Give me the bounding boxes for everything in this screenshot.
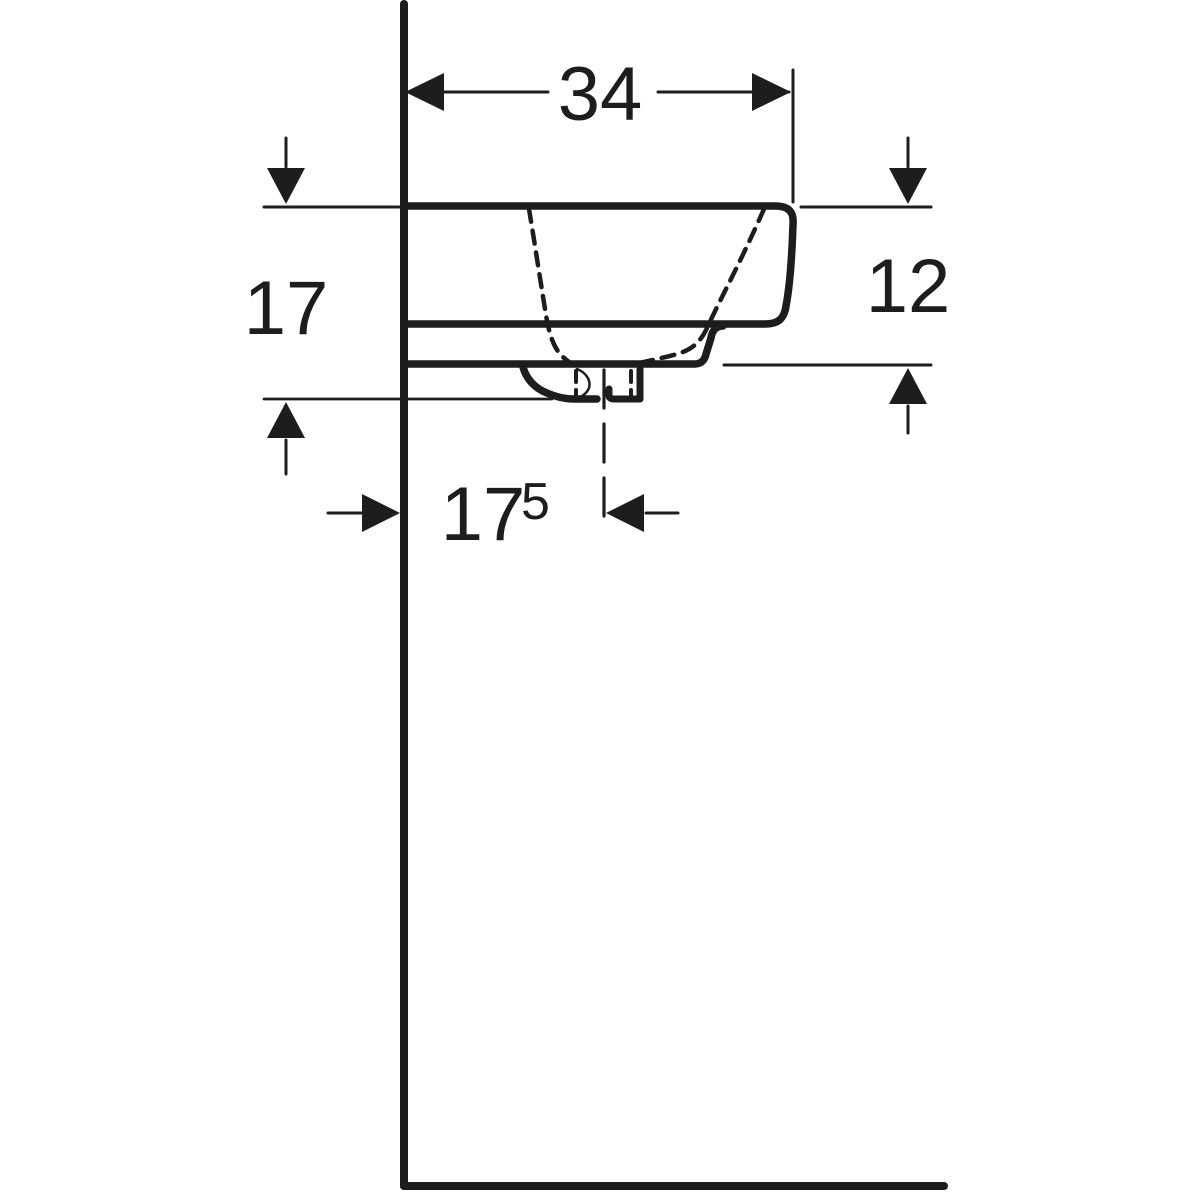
dim-34-arrow-right	[752, 73, 791, 111]
dim-175-value: 17	[441, 472, 526, 557]
drawing-page: 34 17 12 17 5	[0, 0, 1200, 1200]
dim-12-value: 12	[866, 244, 951, 329]
basin-body-outline	[404, 206, 793, 324]
dim-17-value: 17	[244, 266, 329, 351]
technical-drawing: 34 17 12 17 5	[0, 0, 1200, 1200]
drain-outlet-outline	[609, 369, 640, 399]
dim-34-arrow-left	[405, 73, 444, 111]
dim-175-superscript: 5	[521, 473, 550, 531]
bowl-hidden-line-left	[529, 209, 576, 366]
dimension-width-top: 34	[405, 52, 793, 202]
dim-175-arrow-left	[362, 494, 400, 532]
dimension-height-left: 17	[244, 138, 552, 474]
drain-inner-arc	[577, 369, 590, 398]
dim-34-value: 34	[558, 52, 643, 137]
dimension-height-right: 12	[724, 138, 950, 433]
dimension-drain-offset: 17 5	[328, 472, 678, 557]
dim-17-arrow-bottom	[267, 402, 305, 438]
dim-17-arrow-top	[267, 168, 305, 204]
bowl-hidden-line-right	[635, 209, 764, 364]
dim-12-arrow-top	[889, 168, 927, 204]
dim-12-arrow-bottom	[889, 368, 927, 404]
wall-and-floor	[404, 4, 944, 1186]
hidden-lines	[529, 209, 764, 532]
basin-outline	[404, 206, 793, 399]
dim-175-arrow-right	[606, 494, 644, 532]
